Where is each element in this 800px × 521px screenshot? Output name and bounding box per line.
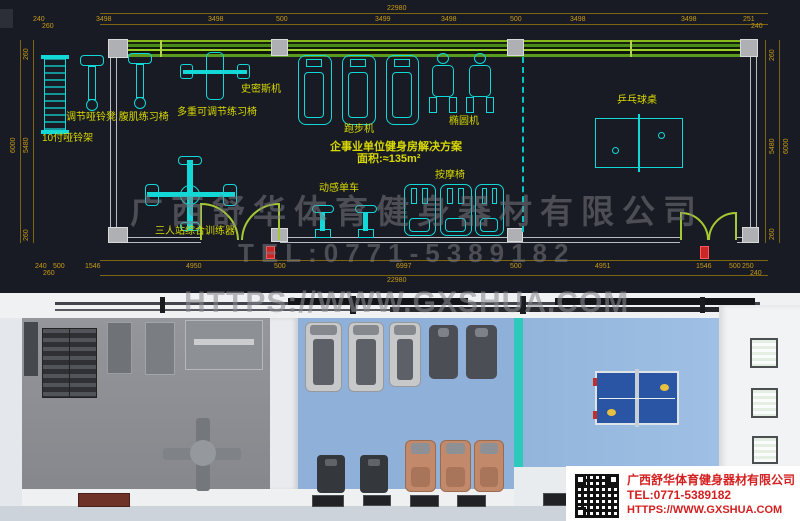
dim-top-sub: 240 [751,23,763,31]
wall-poster [751,388,778,418]
floor-mat [312,495,344,507]
dim-bottom-sub: 240 [750,270,762,278]
cad-treadmill-icon [298,55,332,125]
render-elliptical [466,325,497,379]
render-dumbbell-rack [42,328,70,398]
dim-top: 3499 [375,16,391,24]
column [507,228,523,242]
wall-poster [750,338,778,368]
cad-treadmill-icon [386,55,419,125]
info-company: 广西舒华体育健身器材有限公司 [627,471,795,488]
render-massage-chair [474,440,504,492]
wall-poster [752,436,778,464]
cad-massage-chair-icon [404,184,436,236]
dim-bottom: 500 [510,263,522,271]
render-wall-rack [24,322,38,376]
wall-bottom-2 [280,237,680,243]
column [108,227,128,243]
dim-top: 3498 [208,16,224,24]
gym-layout-sheet: 22980 240 260 3498 3498 500 3499 3498 50… [0,0,800,521]
qr-code [575,474,619,518]
dim-left: 6000 [10,137,18,153]
dim-bottom: 4951 [595,263,611,271]
cad-floor-plan: 22980 240 260 3498 3498 500 3499 3498 50… [0,0,800,293]
plan-area: 面积:≈135m² [357,150,421,166]
label-treadmill: 跑步机 [344,124,374,135]
floor-mat [363,495,391,506]
cad-table-tennis-icon [595,118,683,168]
column [108,39,128,58]
render-smith-machine [185,320,263,370]
dim-top: 3498 [570,16,586,24]
floor-mat [410,495,439,507]
ceiling-beam [288,298,468,305]
column [507,39,524,56]
dim-bottom: 500 [729,263,741,271]
info-box: 广西舒华体育健身器材有限公司 TEL:0771-5389182 HTTPS://… [566,466,800,521]
dim-left: 260 [23,229,31,241]
cad-treadmill-icon [342,55,376,125]
render-treadmill [305,322,342,392]
dim-bottom-sub: 260 [43,270,55,278]
column [740,39,758,57]
render-treadmill [348,322,384,392]
dim-total-bottom: 22980 [387,277,406,285]
render-bench [145,322,175,375]
dim-bottom: 1546 [85,263,101,271]
cad-dumbbell-rack-icon [44,57,66,133]
column [742,227,759,243]
dim-bottom: 4950 [186,263,202,271]
dim-line-right-inner [765,40,766,243]
dim-bottom: 500 [274,263,286,271]
outer-wall-left [0,318,22,521]
cad-dumbbell-rack-cap [41,55,69,59]
dim-top: 500 [276,16,288,24]
cad-massage-chair-icon [440,184,472,236]
label-multi-trainer: 三人站综合训练器 [155,226,235,237]
dim-right: 5480 [769,138,777,154]
ceiling-beam [555,298,755,305]
render-dumbbell-rack [69,328,97,398]
floor-mat [457,495,486,507]
dim-line-left-outer [20,40,21,243]
dim-left: 5480 [23,137,31,153]
paddle-icon [660,384,669,391]
render-spin-bike [317,455,345,493]
label-multi-bench: 多重可调节练习椅 [177,107,257,118]
info-url: HTTPS://WWW.GXSHUA.COM [627,504,782,516]
dim-line-bottom-seg [100,260,768,261]
double-door-right [680,211,737,241]
dim-top-sub: 260 [42,23,54,31]
divider-wall [270,318,298,490]
render-elliptical [429,325,458,379]
ceiling-tick [350,296,356,314]
dim-right: 260 [769,228,777,240]
dim-top: 500 [510,16,522,24]
dim-line-top-total [100,13,768,14]
outside-strip [0,506,570,521]
dim-right: 6000 [783,138,791,154]
render-massage-chair [405,440,436,492]
label-benches: 调节哑铃凳 腹肌练习椅 [66,112,169,123]
render-treadmill [389,322,421,387]
dim-total-top: 22980 [387,5,406,13]
wall-left [110,57,117,228]
dim-line-right-outer [779,40,780,243]
dim-bottom: 1546 [696,263,712,271]
paddle-icon [607,409,616,416]
label-table-tennis: 乒乓球桌 [617,95,657,106]
ceiling-tick [520,296,526,314]
door-mat [78,493,130,507]
dim-line-left-inner [33,40,34,243]
partition-line [522,57,524,232]
render-massage-chair [440,440,471,492]
dim-left: 260 [23,48,31,60]
wall-tick [160,40,162,57]
dim-top: 3498 [681,16,697,24]
label-dumbbell-rack: 10付哑铃架 [42,133,93,144]
column [271,39,288,56]
fire-extinguisher-icon [266,246,275,259]
wall-right [750,57,757,228]
dim-top: 3498 [96,16,112,24]
dim-line-top-seg [100,24,768,25]
label-smith-machine: 史密斯机 [241,84,281,95]
render-bench [107,322,132,374]
render-spin-bike [360,455,388,493]
ceiling-beam [390,307,720,312]
dim-line-bottom-total [100,275,768,276]
corner-block [0,9,13,28]
label-massage-chair: 按摩椅 [435,170,465,181]
ceiling-tick [160,297,165,313]
label-spin-bike: 动感单车 [319,183,359,194]
cad-massage-chair-icon [475,184,504,236]
fire-extinguisher-icon [700,246,709,259]
dim-right: 260 [769,49,777,61]
info-tel: TEL:0771-5389182 [627,488,731,502]
render-pingpong-table [595,371,679,425]
dim-top: 3498 [441,16,457,24]
wall-tick [630,40,632,57]
dim-bottom: 6997 [396,263,412,271]
label-elliptical: 椭圆机 [449,116,479,127]
wall-bottom-1 [117,237,201,243]
ceiling-tick [700,297,705,313]
